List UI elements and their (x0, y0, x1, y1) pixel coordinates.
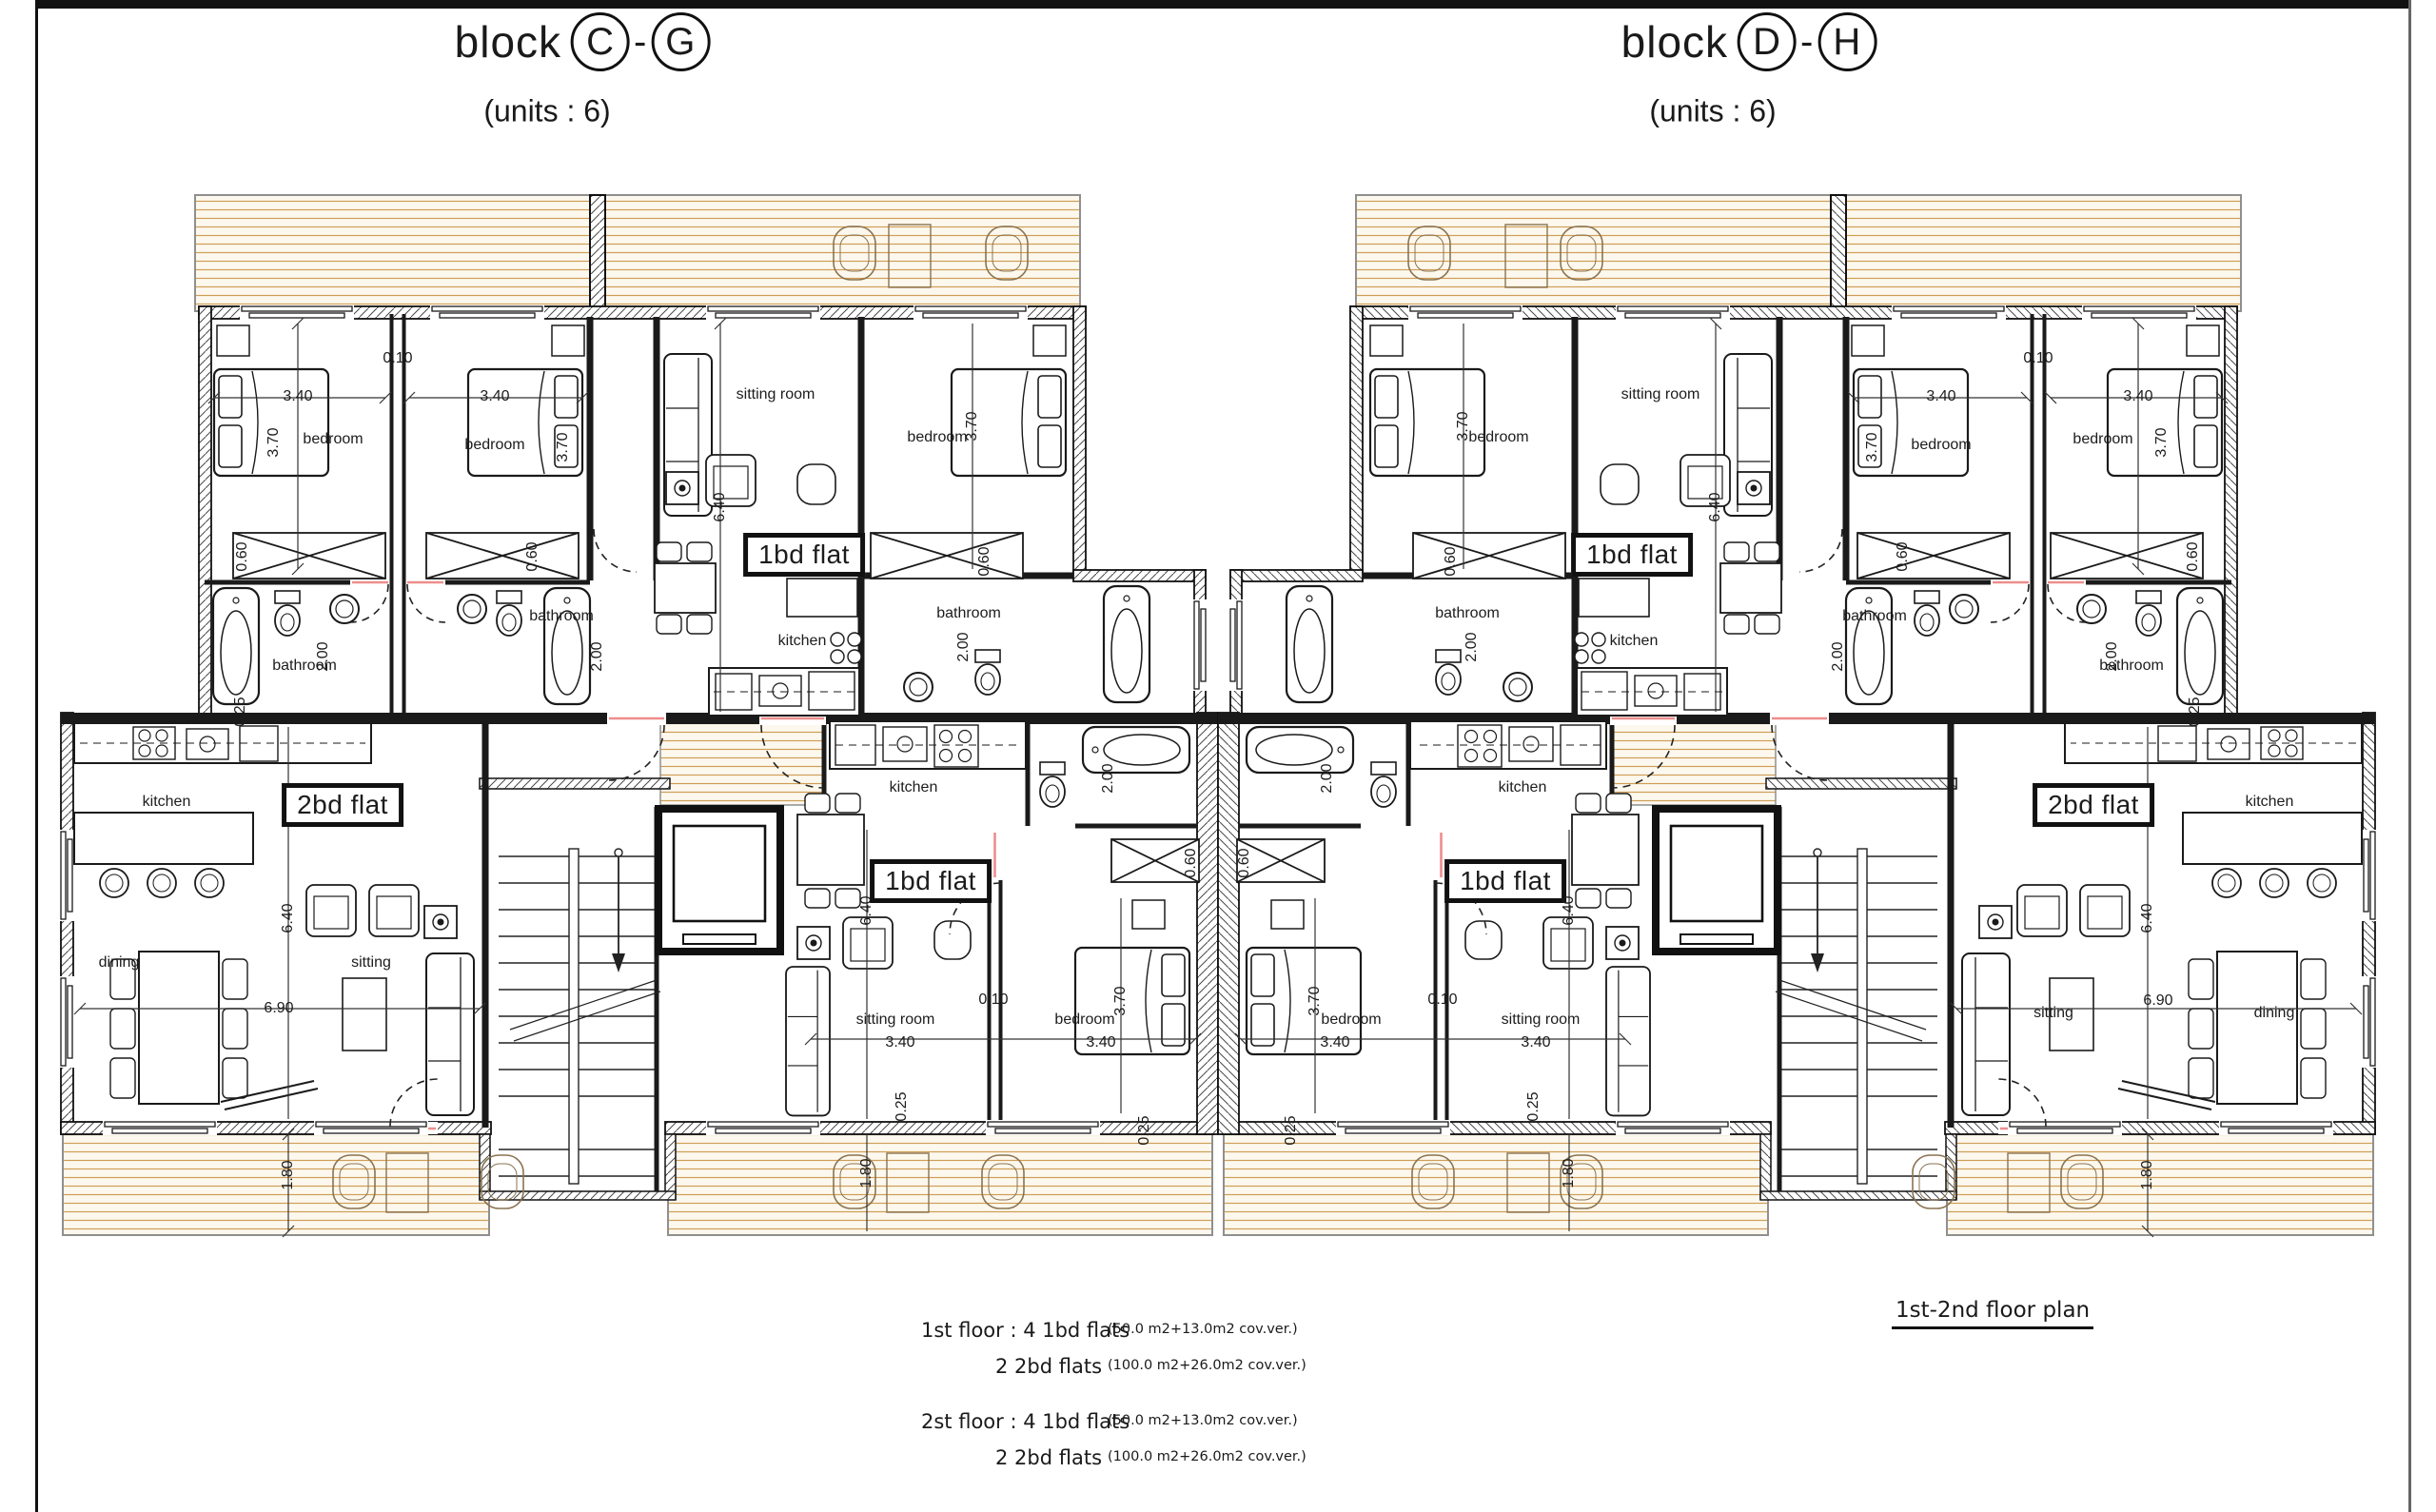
floor-plan-drawing (0, 0, 2436, 1512)
footer-line: 2 2bd flats (100.0 m2+26.0m2 cov.ver.) (995, 1355, 1102, 1378)
floor-summary-detail: (50.0 m2+13.0m2 cov.ver.) (1108, 1413, 1298, 1428)
footer-line: 2 2bd flats (100.0 m2+26.0m2 cov.ver.) (995, 1446, 1102, 1469)
block-letter-h: H (1817, 12, 1876, 71)
floor-summary-label: 1st floor : 4 1bd flats (921, 1319, 1130, 1342)
block-title-right: block D-H (1621, 12, 1877, 71)
block-letter-c: C (571, 12, 630, 71)
title-dash: - (634, 21, 647, 64)
footer-line: 1st floor : 4 1bd flats (50.0 m2+13.0m2 … (921, 1319, 1130, 1342)
sheet-border-left (35, 0, 38, 1512)
plan-title: 1st-2nd floor plan (1892, 1298, 2093, 1329)
floor-summary-detail: (50.0 m2+13.0m2 cov.ver.) (1108, 1322, 1298, 1337)
sheet-border-right (2408, 0, 2411, 1512)
block-letter-g: G (651, 12, 710, 71)
block-title-right-prefix: block (1621, 16, 1728, 68)
floor-summary-label: 2 2bd flats (995, 1446, 1102, 1469)
block-title-left: block C-G (455, 12, 711, 71)
building-block-right (1218, 195, 2377, 1237)
floor-summary-detail: (100.0 m2+26.0m2 cov.ver.) (1108, 1358, 1306, 1373)
floor-summary-label: 2st floor : 4 1bd flats (921, 1410, 1130, 1433)
floor-summary-detail: (100.0 m2+26.0m2 cov.ver.) (1108, 1449, 1306, 1464)
block-title-left-prefix: block (455, 16, 561, 68)
block-units-right: (units : 6) (1649, 94, 1776, 129)
block-units-left: (units : 6) (483, 94, 610, 129)
building-block-left (59, 195, 1218, 1237)
sheet-border-top (35, 0, 2410, 9)
floor-summary-label: 2 2bd flats (995, 1355, 1102, 1378)
title-dash: - (1800, 21, 1814, 64)
floor-plan-sheet: { "titles": { "left": {"prefix": "block"… (0, 0, 2436, 1512)
footer-line: 2st floor : 4 1bd flats (50.0 m2+13.0m2 … (921, 1410, 1130, 1433)
block-letter-d: D (1738, 12, 1797, 71)
